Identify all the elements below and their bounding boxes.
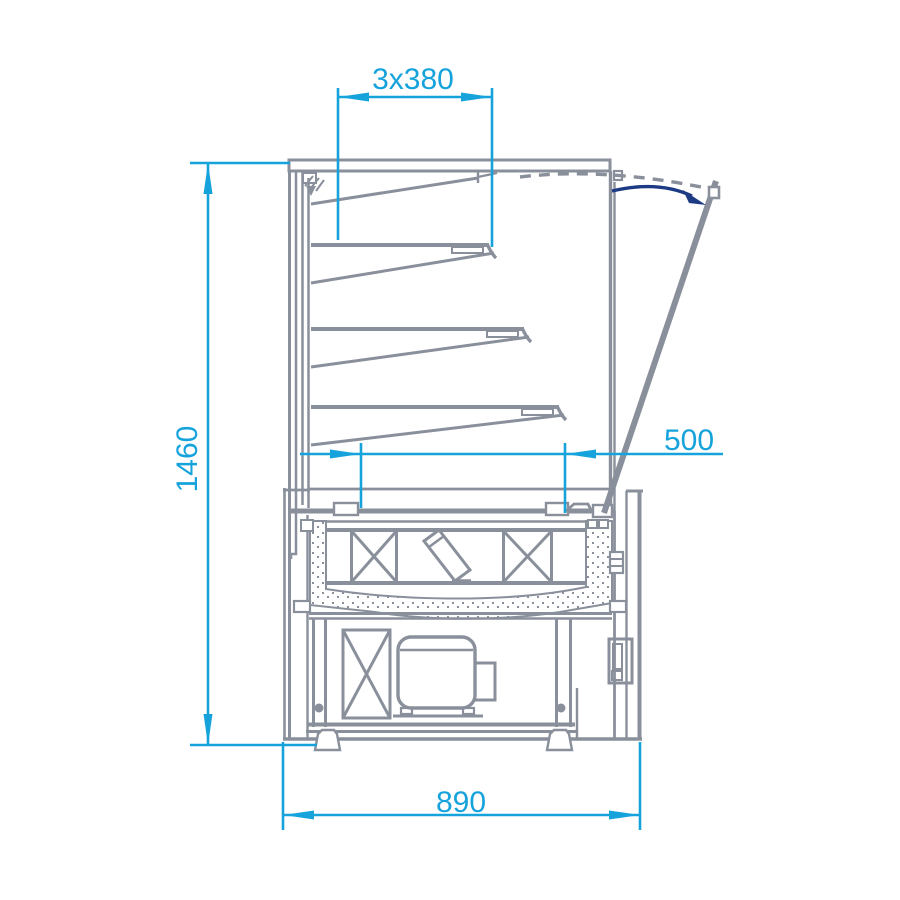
- shelf-row-2: [311, 328, 531, 367]
- bolt-left: [315, 704, 324, 713]
- evaporator-coil-left: [352, 530, 397, 583]
- dim-arrow-left-icon: [338, 93, 369, 102]
- door-swing-arrow: [612, 187, 692, 196]
- dim-arrow-left-icon: [283, 811, 314, 820]
- right-wall: [609, 491, 643, 739]
- electrical-box: [609, 639, 632, 683]
- tub-right-flange-b: [599, 520, 608, 528]
- bolt-right: [557, 704, 566, 713]
- shelf-glass-2: [311, 337, 529, 367]
- dimension-overall-depth: 890: [283, 742, 640, 830]
- shelf-glass-3: [311, 415, 564, 445]
- evaporator-section: [301, 520, 612, 619]
- door-handle: [709, 187, 719, 198]
- dim-label-inner-depth: 500: [664, 424, 714, 457]
- dim-arrow-right-icon: [609, 811, 640, 820]
- dim-label-shelf-depth: 3x380: [372, 63, 454, 96]
- technical-drawing-canvas: 3x380 1460 500 890: [0, 0, 900, 900]
- compressor-terminal-box: [475, 663, 495, 700]
- dim-label-overall-height: 1460: [171, 426, 204, 493]
- machine-compartment: [294, 601, 626, 738]
- evaporator-coil-right: [504, 530, 552, 583]
- dim-arrow-down-icon: [204, 714, 213, 745]
- dim-arrow-right-icon: [461, 93, 492, 102]
- foot-left: [315, 730, 340, 750]
- tub-end-block-right: [610, 601, 626, 612]
- shelf-row-3: [311, 406, 566, 445]
- shelf-row-1: [311, 244, 496, 283]
- deck-support-left: [334, 503, 358, 515]
- fan-unit-tilted: [424, 530, 471, 581]
- tub-end-block-left: [294, 601, 310, 612]
- tub-left-flange: [301, 520, 313, 531]
- tub-right-flange-a: [588, 520, 597, 528]
- shelf-glass-1: [311, 253, 494, 283]
- dim-label-overall-depth: 890: [436, 786, 486, 819]
- hinge-bracket: [610, 552, 623, 573]
- back-panel-line: [291, 171, 296, 559]
- compressor: [393, 637, 495, 716]
- door-glass: [604, 181, 716, 513]
- dimension-shelf-depth: 3x380: [338, 63, 492, 247]
- condenser-coil: [343, 630, 390, 718]
- dim-arrow-inward-right-icon: [565, 450, 596, 459]
- dim-arrow-inward-left-icon: [330, 450, 361, 459]
- foot-right: [547, 730, 572, 750]
- dim-arrow-up-icon: [204, 163, 213, 194]
- technical-drawing-page: 3x380 1460 500 890: [0, 0, 900, 900]
- glass-door-open: [604, 181, 719, 513]
- canopy-light-fixture: [303, 173, 324, 196]
